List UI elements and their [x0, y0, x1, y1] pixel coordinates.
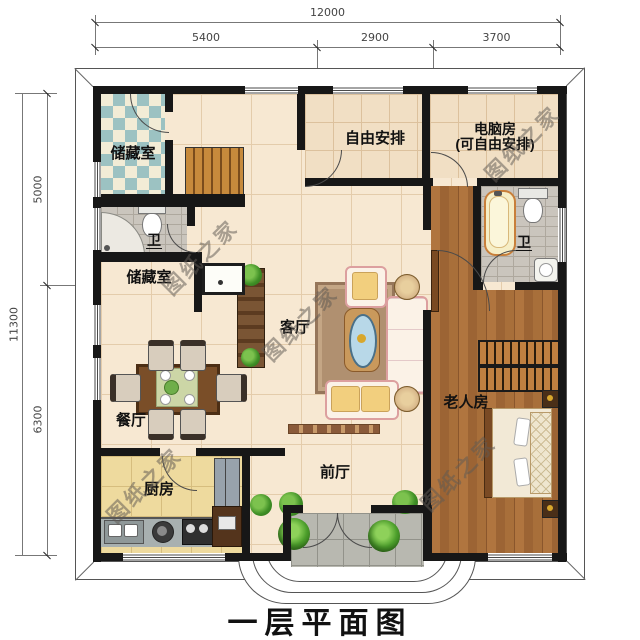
wall-segment [93, 553, 123, 561]
room-label-free-room: 自由安排 [315, 131, 435, 148]
wall-cabinet-knob [218, 280, 223, 285]
fridge-divider [225, 458, 226, 506]
dim-line-left-total [22, 93, 23, 555]
spiky-plant [250, 494, 272, 516]
wall-segment [558, 262, 566, 562]
stove-burner [186, 524, 195, 533]
wall-segment [93, 86, 245, 94]
wall-segment [93, 345, 101, 358]
armchair-cushion [352, 272, 378, 300]
fridge [214, 458, 240, 508]
window [93, 162, 101, 197]
dim-extension [15, 93, 57, 94]
wall-segment [187, 204, 195, 226]
nightstand-lamp [547, 505, 553, 511]
dim-label-top-total: 12000 [95, 6, 560, 19]
window [333, 86, 403, 94]
room-label-dining: 餐厅 [106, 413, 156, 430]
potted-plant [241, 348, 260, 367]
side-table-round [394, 386, 420, 412]
bathtub-faucet [494, 191, 502, 196]
center-bowl [164, 380, 179, 395]
window [558, 208, 566, 262]
wall-segment [93, 250, 101, 305]
wall-segment [371, 505, 424, 513]
wall-segment [101, 194, 245, 207]
wall-segment [423, 186, 431, 230]
cooking-pot-lid [157, 526, 167, 536]
window [468, 86, 537, 94]
dining-chair [180, 340, 206, 371]
wall-segment [552, 553, 567, 561]
staircase [185, 147, 244, 199]
dining-chair [110, 374, 141, 402]
dining-chair [148, 340, 174, 371]
toilet-bowl [523, 198, 543, 223]
plate [184, 394, 195, 405]
dining-chair [180, 409, 206, 440]
dim-label-left-total: 11300 [8, 295, 21, 355]
dim-extension [433, 40, 434, 68]
wall-segment [242, 448, 250, 553]
wall-segment [558, 86, 566, 208]
loveseat-cushion [361, 386, 390, 412]
dim-label-top-seg-3: 3700 [433, 31, 560, 44]
wall-segment [515, 282, 558, 290]
dim-label-top-seg-2: 2900 [317, 31, 433, 44]
dim-line-top-segments [95, 47, 560, 48]
dim-extension [15, 555, 57, 556]
dim-label-left-seg-1: 5000 [32, 160, 45, 220]
floor-plan-title: 一层平面图 [160, 598, 480, 640]
sink-basin [539, 263, 553, 277]
dining-chair [216, 374, 247, 402]
wall-segment [403, 86, 468, 94]
wall-segment [196, 448, 285, 456]
wall-segment [283, 505, 291, 561]
bath-right-text: 卫 [516, 234, 532, 251]
wall-segment [93, 197, 101, 208]
coffee-table-decor [357, 334, 366, 343]
small-appliance [218, 516, 236, 530]
nightstand-lamp [547, 395, 553, 401]
plate [184, 370, 195, 381]
wall-segment [298, 86, 333, 94]
bed-quilt [530, 412, 552, 494]
wall-segment [225, 553, 283, 561]
window [93, 305, 101, 345]
room-label-elder: 老人房 [435, 395, 497, 412]
dim-line-left-segments [47, 93, 48, 555]
window [123, 553, 225, 561]
wall-segment [477, 178, 558, 186]
window [93, 358, 101, 400]
stove-burner [199, 524, 208, 533]
dim-label-top-seg-1: 5400 [95, 31, 317, 44]
wall-segment [93, 86, 101, 162]
wardrobe-rail [478, 340, 562, 366]
side-table-round [394, 274, 420, 300]
dim-label-left-seg-2: 6300 [32, 390, 45, 450]
bathtub-inner [489, 196, 509, 248]
dim-extension [317, 40, 318, 68]
loveseat-cushion [331, 386, 360, 412]
window [245, 86, 298, 94]
room-label-bath-right: 卫 [510, 235, 538, 250]
room-label-front-hall: 前厅 [310, 465, 360, 482]
plate [160, 394, 171, 405]
sink-basin [124, 524, 138, 537]
room-label-bath-left: 卫 [140, 233, 168, 248]
bath-left-text: 卫 [146, 232, 162, 249]
floor-border-decor [288, 424, 380, 434]
wall-segment [297, 94, 305, 150]
wardrobe-rail [478, 366, 562, 392]
shower-drain [104, 245, 110, 251]
wall-segment [165, 140, 173, 196]
window [488, 553, 552, 561]
room-label-storage-top: 储藏室 [101, 146, 165, 163]
dim-line-top-total [95, 22, 560, 23]
wall-segment [93, 400, 101, 562]
bush [368, 520, 400, 552]
wall-segment [432, 553, 488, 561]
floor-plan-canvas: 12000 5400 2900 3700 11300 5000 6300 [0, 0, 640, 640]
window [93, 208, 101, 250]
